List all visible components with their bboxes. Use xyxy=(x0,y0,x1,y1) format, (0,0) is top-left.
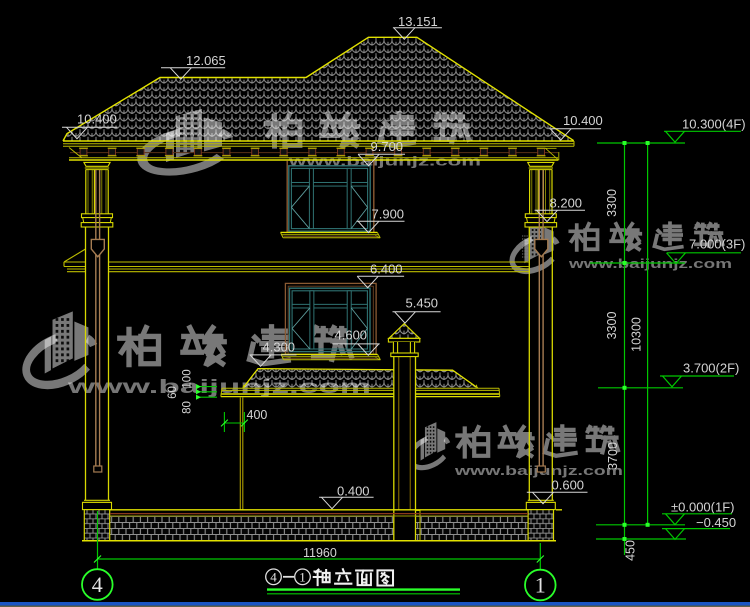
svg-text:10300: 10300 xyxy=(630,317,644,352)
svg-text:±0.000(1F): ±0.000(1F) xyxy=(671,500,735,515)
svg-text:4.300: 4.300 xyxy=(263,340,296,355)
svg-text:9.700: 9.700 xyxy=(371,139,404,154)
svg-text:8.200: 8.200 xyxy=(550,196,583,211)
svg-text:1: 1 xyxy=(299,570,306,585)
svg-text:12.065: 12.065 xyxy=(186,53,226,68)
svg-text:7.900: 7.900 xyxy=(372,207,405,222)
svg-text:6.400: 6.400 xyxy=(370,262,403,277)
svg-text:13.151: 13.151 xyxy=(398,14,438,29)
svg-text:60: 60 xyxy=(167,386,179,399)
svg-text:1: 1 xyxy=(535,573,546,598)
svg-text:4: 4 xyxy=(270,570,277,585)
svg-text:11960: 11960 xyxy=(303,546,337,560)
svg-text:0.600: 0.600 xyxy=(552,478,585,493)
svg-text:3.700(2F): 3.700(2F) xyxy=(683,361,739,376)
svg-text:www.baijunjz.com: www.baijunjz.com xyxy=(66,377,371,398)
svg-text:3300: 3300 xyxy=(605,312,619,340)
svg-text:3700: 3700 xyxy=(606,442,620,470)
svg-text:10.400: 10.400 xyxy=(563,113,603,128)
svg-text:10.300(4F): 10.300(4F) xyxy=(682,117,746,132)
svg-text:7.000(3F): 7.000(3F) xyxy=(689,237,745,252)
svg-text:3300: 3300 xyxy=(605,189,619,217)
svg-text:400: 400 xyxy=(247,408,268,422)
svg-text:80: 80 xyxy=(182,401,194,414)
svg-text:www.baijunjz.com: www.baijunjz.com xyxy=(567,257,732,271)
svg-text:4.600: 4.600 xyxy=(335,328,368,343)
svg-text:450: 450 xyxy=(624,540,638,561)
svg-text:4: 4 xyxy=(92,572,103,597)
svg-text:10.400: 10.400 xyxy=(77,112,117,127)
svg-text:0.400: 0.400 xyxy=(337,484,370,499)
svg-text:−0.450: −0.450 xyxy=(696,515,736,530)
svg-text:100: 100 xyxy=(182,369,194,388)
svg-text:5.450: 5.450 xyxy=(406,296,439,311)
